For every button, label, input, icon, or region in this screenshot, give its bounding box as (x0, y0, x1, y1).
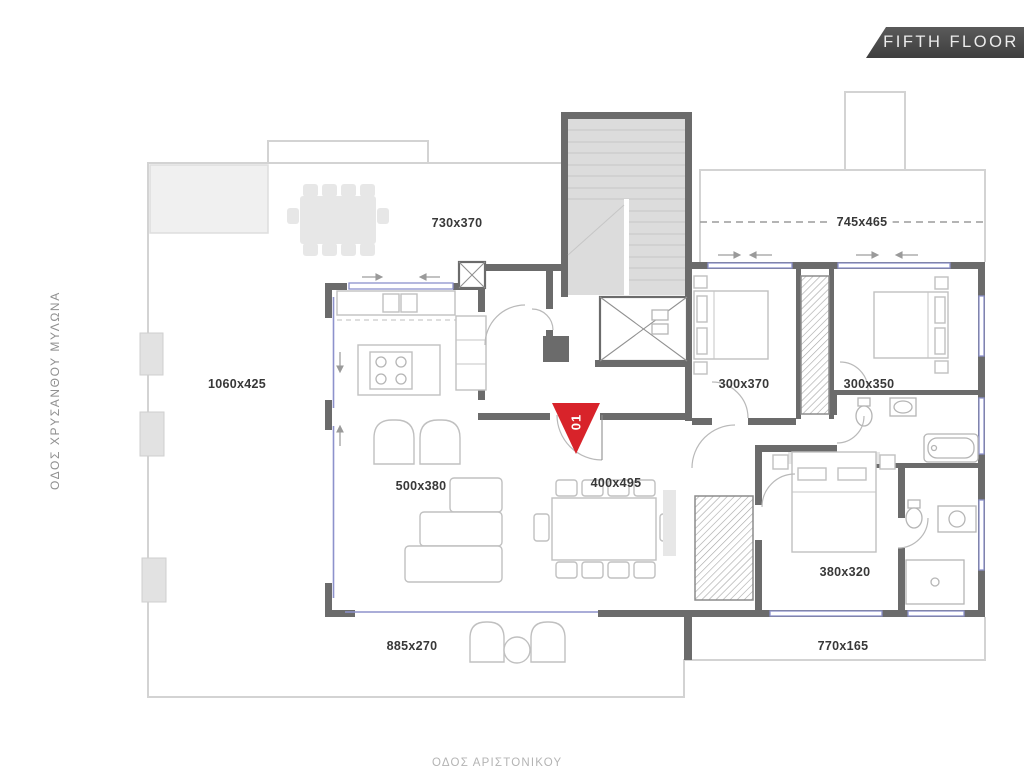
bed-symbol-bedroom1 (694, 276, 768, 374)
floor-badge: FIFTH FLOOR (866, 27, 1024, 58)
floor-plan-page: FIFTH FLOOR ΟΔΟΣ ΧΡΥΣΑΝΘΟΥ ΜΥΛΩΝΑ ΟΔΟΣ Α… (0, 0, 1024, 768)
room-label-master-bedroom: 380x320 (820, 565, 871, 579)
unit-number: 01 (569, 414, 584, 430)
room-label-balcony-bottom: 885x270 (387, 639, 438, 653)
room-label-balcony-bottom-right: 770x165 (818, 639, 869, 653)
ensuite-bathroom-symbol (906, 500, 976, 604)
elevator-symbol (600, 297, 687, 361)
room-label-bedroom-2: 300x350 (844, 377, 895, 391)
window-arrow-icon (420, 274, 440, 280)
room-label-dining-area: 400x495 (591, 476, 642, 490)
stairs-symbol (568, 119, 685, 295)
bed-symbol-bedroom2 (874, 277, 948, 373)
room-label-terrace-left: 1060x425 (208, 377, 266, 391)
kitchen-symbol (337, 291, 486, 395)
terrace-dining-set-symbol (287, 184, 389, 256)
room-label-terrace-top: 730x370 (432, 216, 483, 230)
planter-box (142, 558, 166, 602)
window-arrow-icon (362, 274, 382, 280)
street-label-left: ΟΔΟΣ ΧΡΥΣΑΝΘΟΥ ΜΥΛΩΝΑ (48, 291, 62, 490)
street-label-bottom: ΟΔΟΣ ΑΡΙΣΤΟΝΙΚΟΥ (432, 757, 562, 768)
window-arrow-icon (896, 252, 918, 258)
room-label-living-room: 500x380 (396, 479, 447, 493)
floor-badge-label: FIFTH FLOOR (871, 33, 1019, 52)
planter-box (140, 412, 164, 456)
balcony-lounge-set-symbol (470, 622, 565, 663)
armchair-symbol (374, 420, 460, 464)
flue-box-symbol (459, 262, 485, 288)
walk-in-closet-symbol (695, 496, 753, 600)
room-label-bedroom-1: 300x370 (719, 377, 770, 391)
room-label-terrace-top-right: 745x465 (832, 215, 893, 229)
window-arrow-icon (750, 252, 772, 258)
window-arrow-icon (337, 352, 343, 372)
sofa-symbol (405, 478, 502, 582)
dining-table-symbol (534, 480, 676, 578)
planter-box (140, 333, 163, 375)
window-arrow-icon (856, 252, 878, 258)
wardrobe-symbol (801, 276, 829, 414)
window-arrow-icon (337, 426, 343, 446)
window-arrow-icon (718, 252, 740, 258)
